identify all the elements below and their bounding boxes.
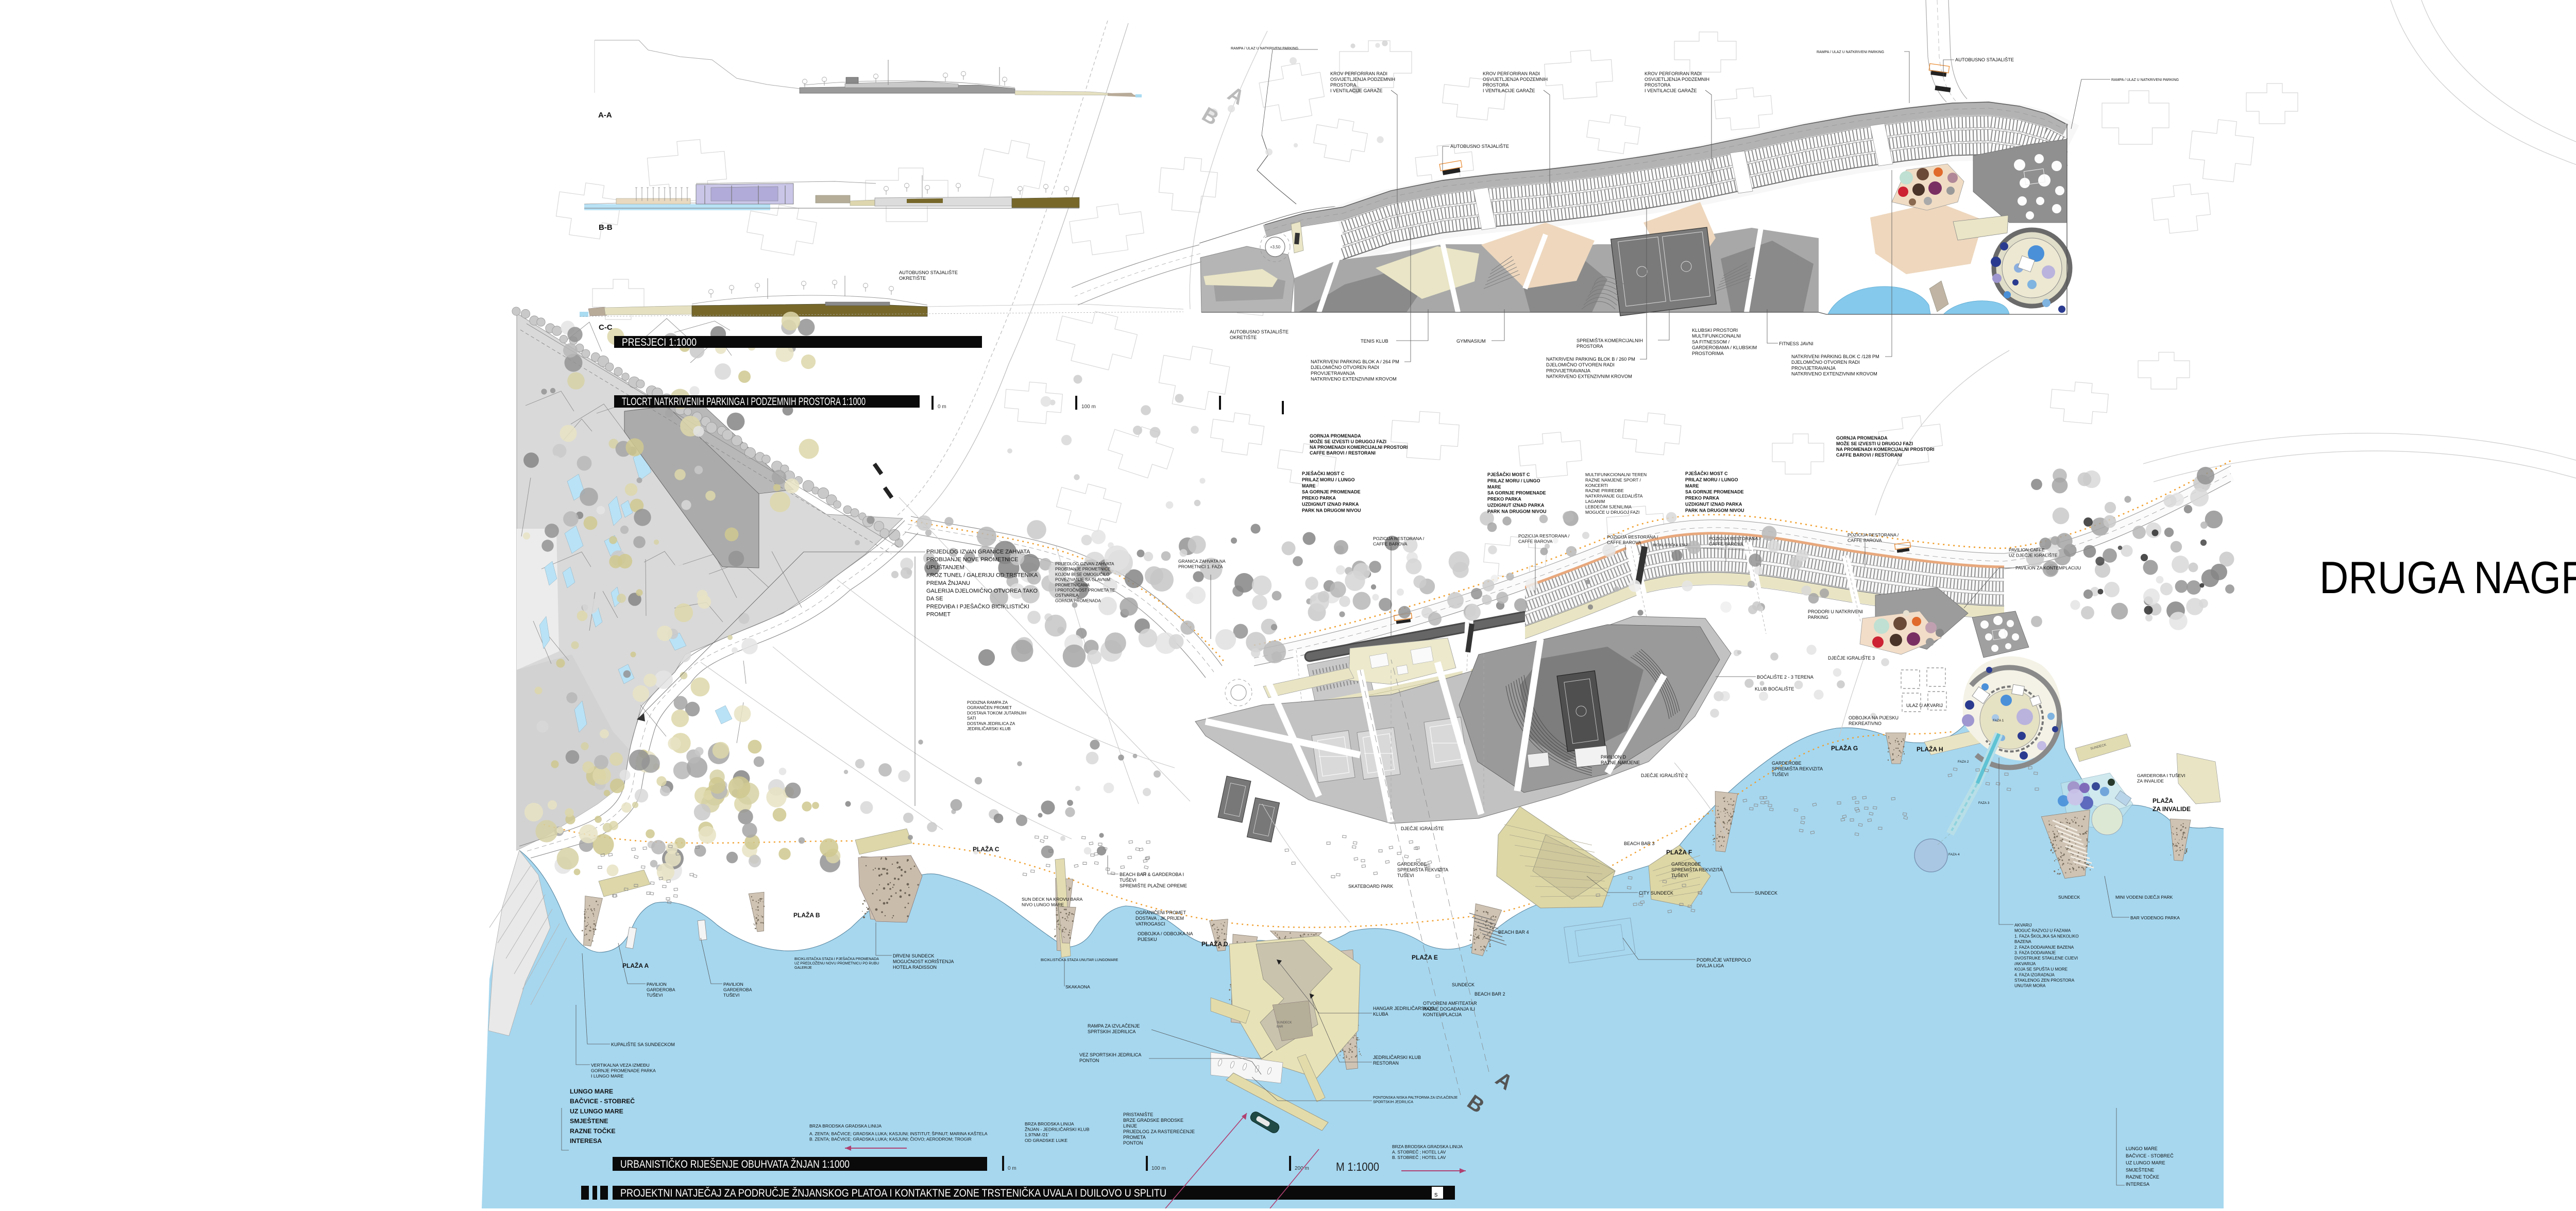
svg-text:BICIKLISTIČKA STAZA UNUTAR LUN: BICIKLISTIČKA STAZA UNUTAR LUNGOMARE — [1041, 957, 1118, 962]
svg-text:FAZA 2: FAZA 2 — [1958, 760, 1969, 764]
svg-text:FAZA 1: FAZA 1 — [1993, 719, 2004, 722]
svg-text:FAZA 3: FAZA 3 — [1978, 801, 1990, 805]
svg-text:M 1:1000: M 1:1000 — [1336, 1160, 1379, 1173]
svg-text:PLAŽA G: PLAŽA G — [1831, 744, 1858, 752]
svg-text:PLAŽA E: PLAŽA E — [1412, 953, 1438, 961]
svg-text:100 m: 100 m — [1151, 1166, 1166, 1171]
svg-text:URBANISTIČKO RIJEŠENJE OBUHVAT: URBANISTIČKO RIJEŠENJE OBUHVATA ŽNJAN 1:… — [620, 1158, 850, 1170]
svg-text:BAR: BAR — [1277, 1025, 1283, 1029]
svg-text:SUNDECK: SUNDECK — [1452, 982, 1475, 987]
svg-text:s: s — [1434, 1190, 1438, 1198]
svg-text:SUNDECK: SUNDECK — [1755, 890, 1777, 896]
svg-text:PJEŠAČKI MOST CPRILAZ MORU / L: PJEŠAČKI MOST CPRILAZ MORU / LUNGOMARESA… — [1487, 472, 1547, 514]
svg-text:KLUB BOĆALIŠTE: KLUB BOĆALIŠTE — [1755, 686, 1794, 692]
svg-text:TLOCRT NATKRIVENIH PARKINGA I: TLOCRT NATKRIVENIH PARKINGA I PODZEMNIH … — [622, 396, 866, 408]
svg-text:PAVILION ZA KONTEMPLACIJU: PAVILION ZA KONTEMPLACIJU — [2015, 565, 2081, 570]
svg-text:AKVARIJMOGUĆ RAZVOJ U FAZAMA1.: AKVARIJMOGUĆ RAZVOJ U FAZAMA1. FAZA ŠKOL… — [2014, 923, 2079, 988]
svg-text:DJEČJE IGRALIŠTE 2: DJEČJE IGRALIŠTE 2 — [1641, 773, 1688, 778]
svg-text:DJEČJE IGRALIŠTE 3: DJEČJE IGRALIŠTE 3 — [1828, 655, 1875, 661]
svg-text:MINI VODENI DJEČJI PARK: MINI VODENI DJEČJI PARK — [2115, 895, 2173, 900]
svg-text:+3,50: +3,50 — [1270, 245, 1281, 249]
svg-text:SKATEBOARD PARK: SKATEBOARD PARK — [1348, 884, 1393, 889]
svg-text:CITY SUNDECK: CITY SUNDECK — [1639, 890, 1673, 896]
svg-text:A. ZENTA; BAČVICE; GRADSKA LUK: A. ZENTA; BAČVICE; GRADSKA LUKA; KASJUNI… — [809, 1131, 988, 1141]
svg-text:PLAŽA H: PLAŽA H — [1917, 745, 1943, 753]
svg-text:BOĆALIŠTE 2 - 3 TERENA: BOĆALIŠTE 2 - 3 TERENA — [1757, 675, 1814, 680]
svg-text:PLAŽA D: PLAŽA D — [1201, 940, 1228, 948]
svg-text:B-B: B-B — [599, 223, 613, 232]
svg-text:PLAŽA F: PLAŽA F — [1666, 848, 1692, 856]
svg-text:PJEŠAČKI MOST CPRILAZ MORU / L: PJEŠAČKI MOST CPRILAZ MORU / LUNGOMARESA… — [1302, 470, 1361, 513]
svg-text:PLAŽA C: PLAŽA C — [973, 845, 999, 853]
svg-text:PRESJECI 1:1000: PRESJECI 1:1000 — [622, 337, 697, 348]
svg-text:GRANICA ZAHVATA NAPROMETNICI 1: GRANICA ZAHVATA NAPROMETNICI 1. FAZA — [1178, 559, 1226, 569]
svg-text:DRUGA NAGRADA: DRUGA NAGRADA — [2319, 552, 2576, 603]
svg-text:RAMPA ZA IZVLAČENJESPRTSKIH JE: RAMPA ZA IZVLAČENJESPRTSKIH JEDRILICA — [1088, 1023, 1140, 1034]
svg-text:PJEŠAČKI MOST CPRILAZ MORU / L: PJEŠAČKI MOST CPRILAZ MORU / LUNGOMARESA… — [1685, 470, 1744, 513]
svg-text:0 m: 0 m — [1008, 1166, 1016, 1171]
svg-text:DJEČJE IGRALIŠTE: DJEČJE IGRALIŠTE — [1401, 826, 1444, 831]
svg-text:RAMPA / ULAZ U NATKRIVENI PARK: RAMPA / ULAZ U NATKRIVENI PARKING — [1231, 47, 1298, 51]
svg-text:BEACH BAR 2: BEACH BAR 2 — [1475, 991, 1505, 997]
svg-text:AUTOBUSNO STAJALIŠTE: AUTOBUSNO STAJALIŠTE — [1955, 57, 2014, 62]
svg-text:ULAZ U AKVARIJ: ULAZ U AKVARIJ — [1906, 703, 1943, 708]
svg-text:SUNDECK: SUNDECK — [2058, 895, 2080, 900]
svg-text:BEACH BAR 4: BEACH BAR 4 — [1498, 930, 1529, 935]
svg-text:TENIS KLUB: TENIS KLUB — [1361, 339, 1388, 344]
svg-text:SKAKAONA: SKAKAONA — [1065, 984, 1090, 989]
svg-text:RAMPA / ULAZ U NATKRIVENI PARK: RAMPA / ULAZ U NATKRIVENI PARKING — [1817, 51, 1884, 54]
svg-text:BICIKLISTIČKA STAZA: BICIKLISTIČKA STAZA — [1653, 543, 1690, 547]
svg-text:PLAŽA B: PLAŽA B — [793, 911, 820, 919]
svg-text:RAMPA / ULAZ U NATKRIVENI PARK: RAMPA / ULAZ U NATKRIVENI PARKING — [2111, 78, 2179, 82]
svg-text:SUNDECK: SUNDECK — [1277, 1021, 1292, 1024]
svg-text:FITNESS JAVNI: FITNESS JAVNI — [1779, 341, 1814, 346]
svg-text:KUPALIŠTE SA SUNDECKOM: KUPALIŠTE SA SUNDECKOM — [611, 1042, 675, 1047]
svg-text:PLAŽA A: PLAŽA A — [622, 962, 649, 969]
svg-text:GYMNASIUM: GYMNASIUM — [1456, 339, 1486, 344]
svg-text:BRZA BRODSKA GRADSKA LINIJA: BRZA BRODSKA GRADSKA LINIJA — [809, 1123, 882, 1129]
svg-text:100 m: 100 m — [1081, 404, 1096, 410]
svg-text:BAR VODENOG PARKA: BAR VODENOG PARKA — [2130, 915, 2180, 920]
svg-text:A-A: A-A — [598, 111, 612, 120]
svg-text:AUTOBUSNO STAJALIŠTE: AUTOBUSNO STAJALIŠTE — [1450, 144, 1509, 149]
svg-text:200 m: 200 m — [1295, 1166, 1309, 1171]
svg-text:FAZA 4: FAZA 4 — [1948, 853, 1960, 856]
svg-text:0 m: 0 m — [938, 404, 946, 410]
svg-text:BEACH BAR 3: BEACH BAR 3 — [1624, 841, 1655, 846]
svg-text:PROJEKTNI NATJEČAJ ZA PODRUČJE: PROJEKTNI NATJEČAJ ZA PODRUČJE ŽNJANSKOG… — [620, 1187, 1166, 1199]
